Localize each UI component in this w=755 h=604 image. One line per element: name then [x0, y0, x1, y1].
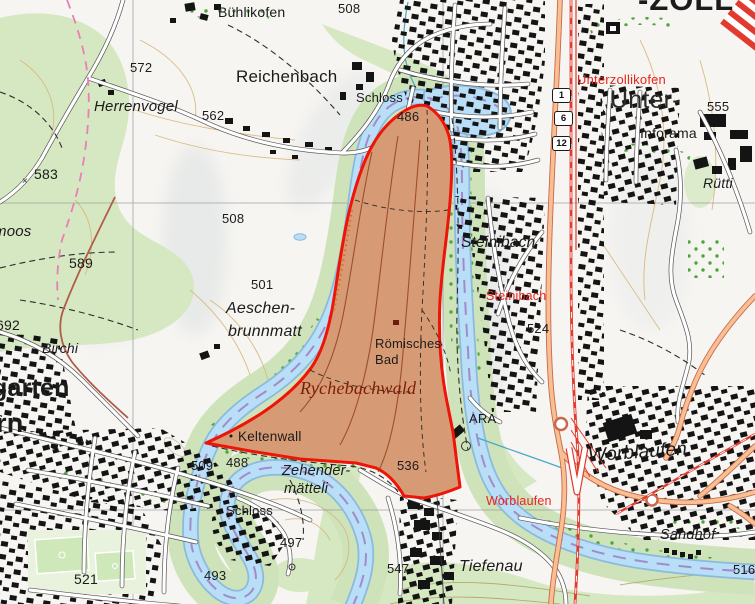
place-label-schloss-south: Schloss — [226, 504, 273, 517]
station-label-worblaufen: Worblaufen — [486, 495, 552, 508]
spot-height-555: 555 — [707, 100, 729, 113]
spot-height-497: 497 — [280, 536, 302, 549]
route-shield-6: 6 — [554, 111, 573, 126]
station-label-steinibach: Steinibach — [486, 290, 546, 303]
place-label-buehlikofen: Bühlikofen — [218, 5, 285, 19]
route-shield-1: 1 — [552, 88, 571, 103]
poi-label-keltenwall: Keltenwall — [238, 430, 302, 444]
spot-height-508-top: 508 — [338, 2, 360, 15]
place-label-aeschenbrunnmatt-2: brunnmatt — [228, 324, 302, 340]
spot-height-583: 583 — [34, 167, 58, 181]
roman-bath-marker — [393, 320, 399, 325]
spot-height-692-cut: 692 — [0, 318, 20, 332]
place-label-steinibach: Steinibach — [461, 235, 535, 251]
spot-height-536: 536 — [397, 459, 419, 472]
place-label-reichenbach: Reichenbach — [236, 68, 337, 85]
map-canvas[interactable]: Bühlikofen 508 -ZOLL 572 Reichenbach Her… — [0, 0, 755, 604]
station-label-unterzollikofen: Unterzollikofen — [577, 73, 666, 86]
place-label-zollikofen-cut: -ZOLL — [638, 0, 734, 15]
orchard — [688, 238, 724, 278]
spot-height-486: 486 — [397, 110, 419, 123]
spot-height-501: 501 — [251, 278, 273, 291]
place-label-aeschenbrunnmatt-1: Aeschen- — [226, 301, 295, 317]
place-label-rn-cut: rn — [0, 410, 23, 437]
poi-label-bad: Bad — [375, 353, 399, 366]
spot-height-524: 524 — [527, 322, 549, 335]
place-label-garten-cut: garten — [0, 376, 70, 401]
place-label-ruetti: Rütti — [703, 176, 733, 190]
place-label-schloss-north: Schloss — [356, 91, 403, 104]
spot-height-509: 509 — [191, 459, 213, 472]
spot-height-583-mark: × — [22, 176, 28, 187]
place-label-tiefenau: Tiefenau — [459, 559, 523, 575]
place-label-herrenvogel: Herrenvogel — [94, 99, 178, 114]
spot-height-493: 493 — [204, 569, 226, 582]
poi-label-roemisches: Römisches — [375, 337, 441, 350]
spot-height-488: 488 — [226, 456, 248, 469]
school-courtyard — [610, 26, 616, 31]
place-label-zehender-1: Zehender- — [282, 464, 350, 479]
place-label-inforama: Inforama — [640, 126, 697, 140]
spot-height-547: 547 — [387, 562, 409, 575]
place-label-zehender-2: mätteli — [284, 482, 328, 497]
roundabout — [555, 418, 567, 430]
place-label-unter: Unter- — [610, 88, 681, 113]
place-label-sandhof: Sandhof — [660, 528, 715, 543]
forest-label-rychebachwald: Rychebachwald — [300, 379, 416, 397]
place-label-moos-cut: moos — [0, 224, 31, 239]
place-label-birchi: Birchi — [42, 341, 78, 355]
route-shield-12: 12 — [552, 136, 571, 151]
spot-height-589: 589 — [69, 256, 93, 270]
spot-height-572: 572 — [130, 61, 152, 74]
poi-label-ara: ARA — [469, 412, 496, 425]
spot-height-521: 521 — [74, 572, 98, 586]
spot-height-562: 562 — [202, 109, 224, 122]
spot-height-508-mid: 508 — [222, 212, 244, 225]
spot-height-516-cut: 516 — [733, 563, 755, 576]
